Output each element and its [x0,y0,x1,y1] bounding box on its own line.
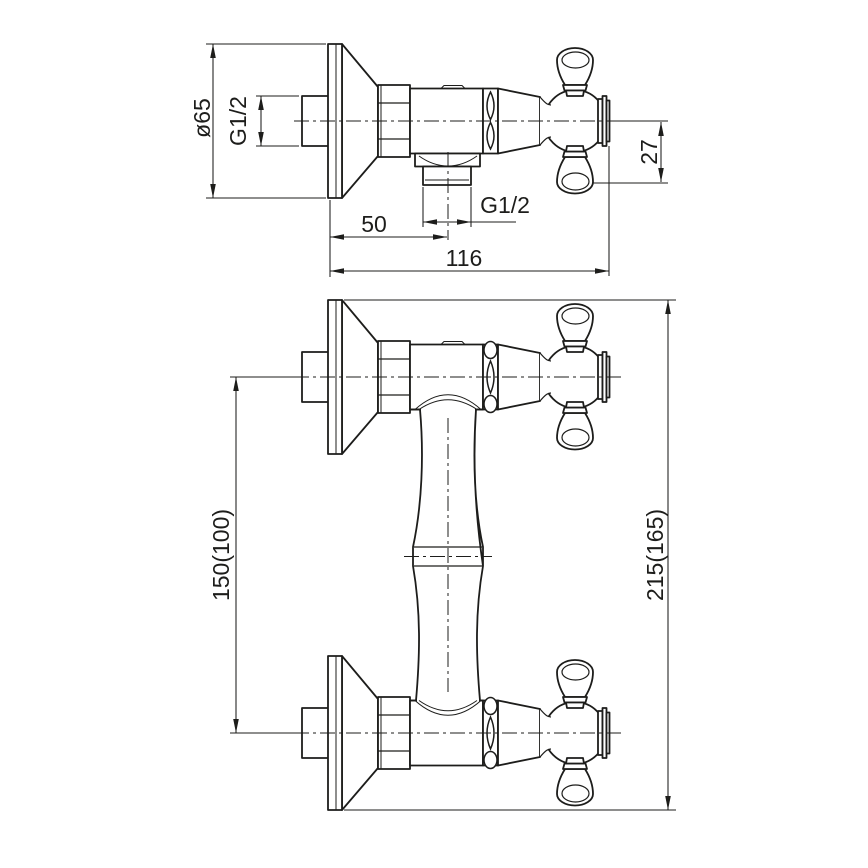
top-view: ø65 G1/2 G1/2 50 116 [189,44,668,277]
dim-outlet-thread: G1/2 [480,192,530,218]
dim-overall-depth: 116 [446,245,483,271]
dim-outlet-offset: 50 [361,211,387,237]
dim-inlet-thread: G1/2 [225,96,251,146]
page: ø65 G1/2 G1/2 50 116 [0,0,868,868]
dim-flange-diameter: ø65 [189,98,215,138]
dim-outlet-thread-group: G1/2 [423,187,530,227]
dim-inlet-thread-group: G1/2 [225,96,299,146]
dim-outlet-offset-group: 50 [330,200,447,277]
technical-drawing: ø65 G1/2 G1/2 50 116 [0,0,868,868]
dim-port-spacing-group: 150(100) [208,377,298,733]
front-view: 150(100) 215(165) [208,300,676,810]
dim-port-spacing: 150(100) [208,509,234,601]
column [410,395,483,716]
dim-overall-height: 215(165) [642,509,668,601]
dim-handle-drop: 27 [636,139,662,165]
outlet-nipple [423,167,471,186]
